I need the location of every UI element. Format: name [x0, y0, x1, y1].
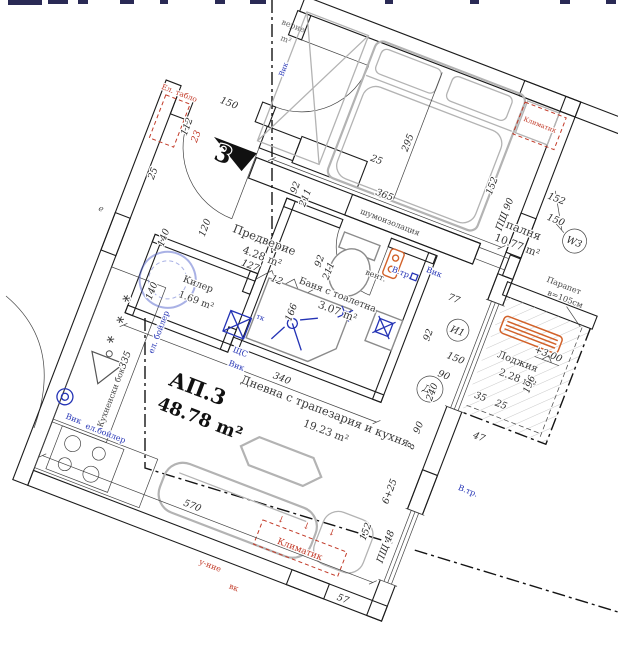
- dim-25b: 25: [146, 166, 161, 182]
- dim-6-25: 6+25: [380, 477, 400, 505]
- vent-asterisk: *: [113, 313, 127, 333]
- noise-insulation-note: шумоизолация: [359, 207, 421, 238]
- dim-25: 25: [368, 153, 384, 168]
- dim-150b: 150: [445, 350, 466, 367]
- floor-plan-sheet: верие m²: [0, 0, 618, 667]
- cut-off-text: [8, 0, 616, 5]
- dim-90b: 90: [412, 420, 427, 435]
- dim-335: 335: [117, 350, 134, 371]
- dim-152: 152: [484, 176, 501, 197]
- dim-92c: 92: [421, 327, 436, 342]
- plumbing-note-2: Вик: [64, 412, 82, 426]
- neighbor-door-arc: [6, 296, 44, 428]
- vent-asterisk: *: [119, 291, 133, 311]
- dim-140: 140: [156, 227, 173, 248]
- wardrobe-icon: [257, 12, 368, 164]
- dining-table-icon: [236, 432, 327, 491]
- ac-arrow: ↓: [301, 521, 312, 533]
- riser-symbol-icon: [410, 273, 418, 281]
- dim-570: 570: [182, 498, 203, 515]
- dim-47: 47: [470, 430, 487, 445]
- red-note-fragment-a: у-ние: [198, 557, 223, 574]
- svg-text:И1: И1: [448, 324, 466, 340]
- window-mark-w3: 152 150 W3: [532, 191, 599, 257]
- dim-8: 8: [405, 442, 417, 452]
- bath-sink-icon: [365, 311, 403, 351]
- dim-295: 295: [399, 132, 416, 154]
- dim-140b: 140: [144, 281, 161, 302]
- ac-note-bedroom: Климатик: [522, 115, 557, 135]
- ac-arrow: ↓: [326, 527, 337, 539]
- window-mark-i1: И1: [444, 316, 472, 344]
- plan-rotated-group: * * *: [0, 0, 618, 667]
- dim-120: 120: [197, 217, 214, 238]
- red-note-fragment-b: вк: [228, 582, 240, 594]
- svg-text:150: 150: [545, 212, 566, 229]
- ac-arrow: ↓: [275, 514, 286, 526]
- svg-text:W3: W3: [565, 235, 584, 251]
- plumbing-riser-note: Вик: [277, 61, 290, 78]
- switchboard-label: ЩС: [231, 345, 248, 359]
- dim-77: 77: [446, 292, 462, 307]
- riser-note-2: В.тр.: [457, 483, 479, 499]
- letter-e: е: [97, 204, 105, 214]
- dim-door-150: 150: [218, 95, 239, 112]
- neighbor-room-fragment: верие: [280, 17, 306, 34]
- dim-90: 90: [436, 368, 451, 383]
- boiler-note-vertical: ел. бойлер: [147, 310, 171, 355]
- svg-text:152: 152: [546, 191, 567, 208]
- plumbing-note-3: Вик: [425, 265, 443, 279]
- dim-365: 365: [374, 187, 395, 204]
- vent-asterisk: *: [103, 332, 117, 352]
- floor-plan-drawing: верие m²: [0, 0, 618, 667]
- plumbing-note-1: Вик: [227, 359, 245, 373]
